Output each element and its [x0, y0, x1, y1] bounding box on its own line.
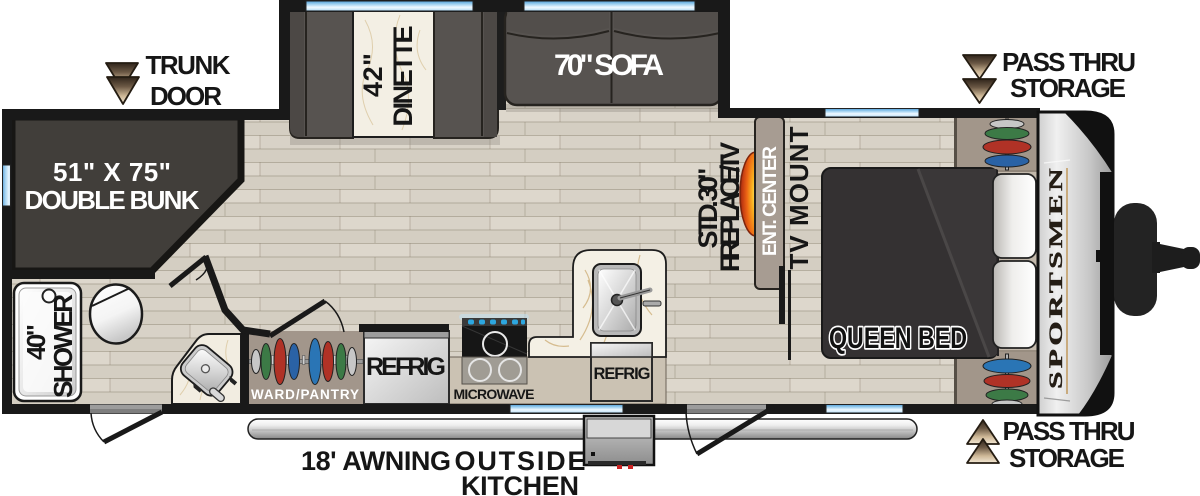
svg-text:ENT. CENTER: ENT. CENTER — [760, 146, 781, 256]
svg-text:PASS THRU: PASS THRU — [1003, 416, 1136, 446]
svg-text:QUEEN BED: QUEEN BED — [829, 322, 967, 355]
svg-text:SHOWER: SHOWER — [48, 294, 78, 398]
svg-text:DINETTE: DINETTE — [388, 26, 418, 127]
svg-text:WARD/PANTRY: WARD/PANTRY — [251, 387, 359, 402]
svg-text:DOOR: DOOR — [150, 81, 222, 111]
svg-text:FIREPLACE/TV: FIREPLACE/TV — [715, 142, 745, 272]
svg-text:40": 40" — [21, 324, 51, 360]
svg-text:DOUBLE BUNK: DOUBLE BUNK — [25, 185, 200, 215]
svg-text:51" X 75": 51" X 75" — [53, 157, 171, 187]
svg-text:TV MOUNT: TV MOUNT — [784, 126, 814, 269]
svg-text:TRUNK: TRUNK — [146, 50, 231, 80]
svg-text:MICROWAVE: MICROWAVE — [454, 386, 535, 402]
svg-text:REFRIG: REFRIG — [594, 365, 651, 383]
svg-text:STORAGE: STORAGE — [1009, 443, 1125, 473]
svg-text:KITCHEN: KITCHEN — [461, 471, 579, 496]
svg-text:REFRIG: REFRIG — [366, 353, 446, 381]
svg-text:42": 42" — [358, 53, 388, 97]
svg-text:70" SOFA: 70" SOFA — [554, 49, 664, 82]
svg-text:18' AWNING: 18' AWNING — [301, 446, 451, 476]
svg-text:SPORTSMEN: SPORTSMEN — [1046, 165, 1067, 389]
svg-text:STORAGE: STORAGE — [1010, 73, 1126, 103]
